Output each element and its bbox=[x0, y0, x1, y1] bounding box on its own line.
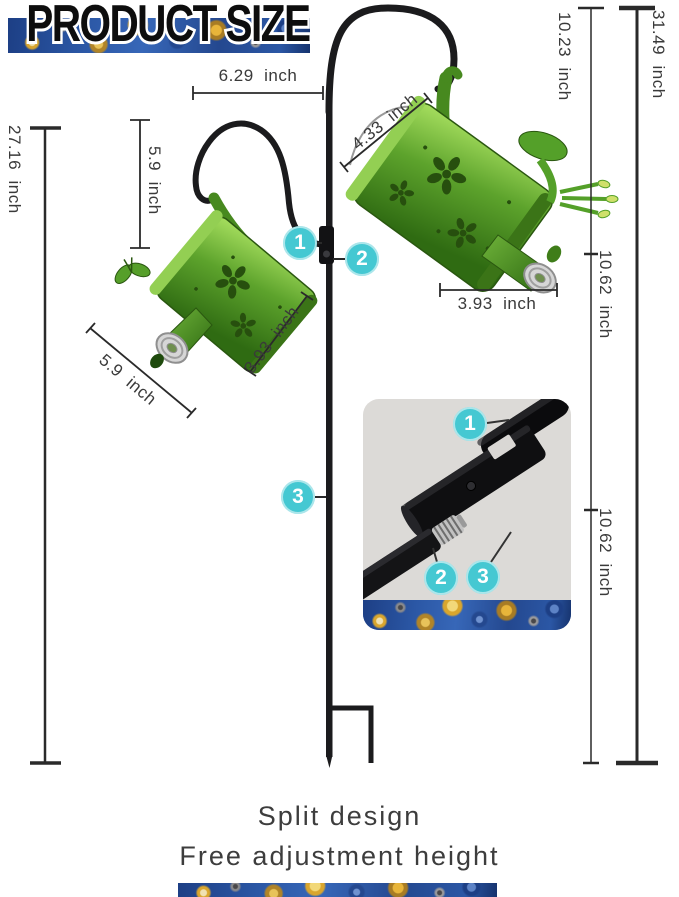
inset-marker-2-badge: 2 bbox=[424, 561, 458, 595]
dim-label-right-can-width: 3.93 inch bbox=[431, 294, 563, 314]
footer-line-1: Split design bbox=[0, 801, 679, 832]
upper-hook bbox=[329, 8, 454, 112]
inset-marker-3-badge: 3 bbox=[466, 560, 500, 594]
inset-marker-3-number: 3 bbox=[477, 565, 489, 589]
right-spout-tip bbox=[544, 243, 564, 265]
marker-1-number: 1 bbox=[294, 231, 306, 255]
inset-marker-1-number: 1 bbox=[464, 412, 476, 436]
dim-label-pole-offset: 6.29 inch bbox=[193, 66, 323, 86]
dim-label-upper-section: 10.23 inch bbox=[554, 12, 574, 101]
title-banner: PRODUCT SIZE bbox=[20, 0, 320, 50]
connector-detail-inset: 1 2 3 bbox=[363, 399, 571, 630]
ground-stake-fork bbox=[331, 708, 371, 763]
marker-1-badge: 1 bbox=[283, 226, 317, 260]
inset-marker-2-number: 2 bbox=[435, 566, 447, 590]
marker-3-number: 3 bbox=[292, 485, 304, 509]
dim-label-hang-drop: 5.9 inch bbox=[144, 146, 164, 215]
footer-line-2: Free adjustment height bbox=[0, 841, 679, 872]
marker-3-badge: 3 bbox=[281, 480, 315, 514]
product-size-diagram: PRODUCT SIZE bbox=[0, 0, 679, 897]
dim-label-middle-section: 10.62 inch bbox=[595, 250, 615, 339]
marker-2-number: 2 bbox=[356, 247, 368, 271]
page-title: PRODUCT SIZE bbox=[26, 0, 310, 50]
shepherds-hook-art bbox=[0, 0, 679, 897]
starry-night-strip-inset bbox=[363, 600, 571, 630]
dim-label-total-height: 31.49 inch bbox=[648, 10, 668, 99]
marker-2-badge: 2 bbox=[345, 242, 379, 276]
butterfly-decoration bbox=[108, 253, 155, 288]
pole-clamp bbox=[319, 226, 334, 264]
inset-marker-1-badge: 1 bbox=[453, 407, 487, 441]
dim-label-stand-height: 27.16 inch bbox=[4, 125, 24, 214]
dim-label-lower-section: 10.62 inch bbox=[595, 508, 615, 597]
